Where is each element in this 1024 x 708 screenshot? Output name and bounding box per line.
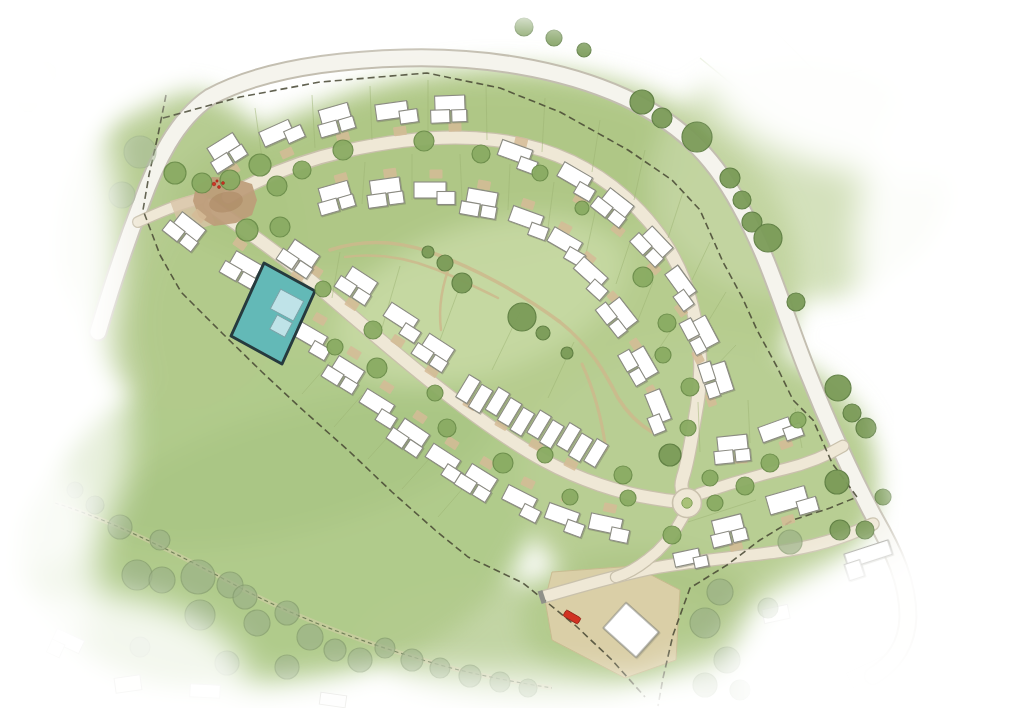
house-footprint	[459, 201, 480, 217]
tree	[707, 579, 733, 605]
house-footprint	[435, 95, 466, 111]
tree	[220, 170, 240, 190]
entrance-feature-marker	[222, 182, 225, 185]
tree	[575, 201, 589, 215]
tree	[787, 293, 805, 311]
tree	[652, 108, 672, 128]
tree	[562, 489, 578, 505]
tree	[267, 176, 287, 196]
tree	[546, 30, 562, 46]
tree	[537, 447, 553, 463]
tree	[181, 560, 215, 594]
entrance-feature-marker	[212, 182, 216, 186]
tree	[367, 358, 387, 378]
house-footprint	[714, 450, 734, 465]
driveway	[448, 122, 461, 131]
roundabout-island	[682, 498, 692, 508]
tree	[472, 145, 490, 163]
house	[430, 95, 467, 123]
tree	[761, 454, 779, 472]
tree	[315, 281, 331, 297]
house	[365, 177, 404, 209]
tree	[825, 375, 851, 401]
tree	[108, 515, 132, 539]
tree	[401, 649, 423, 671]
tree	[875, 489, 891, 505]
tree	[843, 404, 861, 422]
tree	[702, 470, 718, 486]
tree	[438, 419, 456, 437]
driveway	[430, 170, 443, 179]
tree	[614, 466, 632, 484]
tree	[754, 224, 782, 252]
tree	[364, 321, 382, 339]
tree	[164, 162, 186, 184]
siteplan-stage	[0, 0, 1024, 708]
tree	[270, 217, 290, 237]
tree	[655, 347, 671, 363]
tree	[620, 490, 636, 506]
tree	[249, 154, 271, 176]
tree	[324, 639, 346, 661]
house-footprint	[431, 110, 450, 124]
tree	[532, 165, 548, 181]
tree	[830, 520, 850, 540]
tree	[707, 495, 723, 511]
tree	[150, 530, 170, 550]
tree	[778, 530, 802, 554]
tree	[536, 326, 550, 340]
tree	[790, 412, 806, 428]
tree	[244, 610, 270, 636]
entrance-feature-marker	[218, 186, 221, 189]
tree	[682, 122, 712, 152]
tree	[508, 303, 536, 331]
tree	[680, 420, 696, 436]
tree	[561, 347, 573, 359]
house-footprint	[388, 191, 405, 205]
tree	[297, 624, 323, 650]
tree	[149, 567, 175, 593]
tree	[690, 608, 720, 638]
tree	[633, 267, 653, 287]
tree	[275, 601, 299, 625]
driveway	[393, 126, 407, 137]
house-footprint	[367, 193, 388, 209]
tree	[856, 521, 874, 539]
tree	[192, 173, 212, 193]
tree	[333, 140, 353, 160]
house-footprint	[452, 109, 467, 122]
house-footprint	[735, 448, 751, 462]
tree	[856, 418, 876, 438]
tree	[293, 161, 311, 179]
tree	[658, 314, 676, 332]
tree	[275, 655, 299, 679]
house-footprint	[693, 555, 709, 569]
tree	[348, 648, 372, 672]
tree	[124, 136, 156, 168]
tree	[577, 43, 591, 57]
house-footprint	[480, 205, 497, 219]
tree	[681, 378, 699, 396]
tree	[825, 470, 849, 494]
tree	[720, 168, 740, 188]
driveway	[383, 168, 397, 179]
tree	[233, 585, 257, 609]
tree	[327, 339, 343, 355]
tree	[452, 273, 472, 293]
tree	[659, 444, 681, 466]
tree	[663, 526, 681, 544]
tree	[414, 131, 434, 151]
tree	[437, 255, 453, 271]
entrance-feature-marker	[216, 180, 218, 182]
tree	[236, 219, 258, 241]
tree	[375, 638, 395, 658]
tree	[122, 560, 152, 590]
tree	[736, 477, 754, 495]
tree	[630, 90, 654, 114]
tree	[422, 246, 434, 258]
site-plan-canvas	[0, 0, 1024, 708]
tree	[733, 191, 751, 209]
house	[712, 434, 751, 465]
tree	[493, 453, 513, 473]
house-footprint	[399, 109, 419, 124]
tree	[427, 385, 443, 401]
house-footprint	[437, 192, 455, 205]
